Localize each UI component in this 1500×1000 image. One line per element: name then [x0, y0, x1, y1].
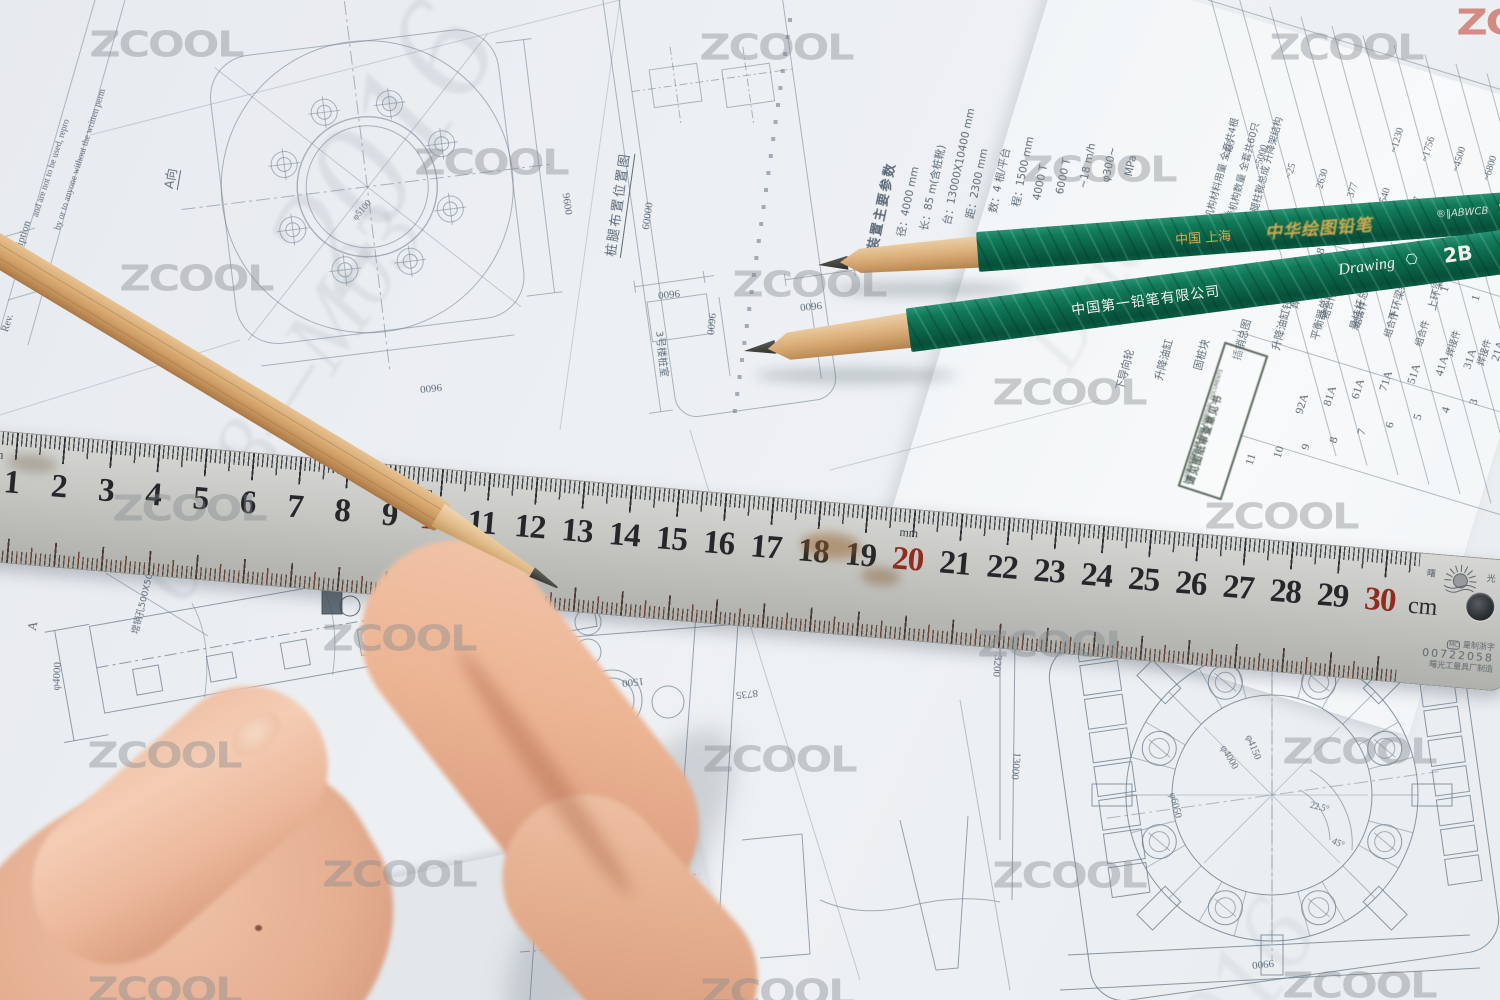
ruler-number-4: 4	[144, 476, 163, 514]
skin-mole	[255, 925, 262, 931]
ruler-number-8: 8	[333, 492, 352, 530]
brand-char-right: 光	[1486, 572, 1496, 585]
pencil-lead-tip	[529, 567, 560, 592]
beam-dim: φ4000	[50, 662, 64, 691]
ruler-number-3: 3	[97, 472, 116, 510]
ruler-number-17: 17	[749, 528, 783, 568]
pencil-hex-icon: ⎔	[1405, 251, 1419, 268]
pile-plan-dim-bottom: 9600	[419, 381, 442, 395]
layout-dim-3: 9600	[704, 313, 718, 336]
ruler-number-22: 22	[985, 548, 1019, 588]
ruler-number-5: 5	[191, 480, 210, 518]
asm-dim-1500c: 1500	[621, 675, 644, 689]
pencil-grade-text: 2B	[1442, 240, 1474, 268]
ruler-number-28: 28	[1268, 573, 1302, 613]
asm-dim-13000: 13000	[1009, 752, 1023, 780]
ruler-cm-label: cm	[1407, 593, 1439, 622]
asm-dim-3200: 3200	[990, 655, 1004, 678]
ruler-number-16: 16	[702, 524, 736, 564]
ruler-number-14: 14	[607, 516, 641, 556]
ruler-number-6: 6	[238, 484, 257, 522]
ruler-number-30: 30	[1363, 581, 1397, 621]
ruler-number-29: 29	[1316, 577, 1350, 617]
ruler-number-25: 25	[1127, 561, 1161, 601]
ruler-number-7: 7	[286, 488, 305, 526]
pencil-wood-cone	[839, 236, 986, 279]
asm-dim-8735: 8735	[735, 687, 758, 701]
pile-plan-view-label: A向	[160, 167, 180, 190]
photo-stage: A向 9600 9600 φ5100 桩腿布置位置图 60000 9600 96…	[0, 0, 1500, 1000]
pencil-shadow	[756, 368, 956, 383]
ruler-mm-label-2: mm	[899, 525, 919, 542]
ruler-number-24: 24	[1080, 557, 1114, 597]
brand-char-left: 曙	[1426, 568, 1436, 580]
pencil-shadow	[832, 282, 1022, 296]
layout-dim-2: 9600	[799, 299, 822, 313]
ruler-number-23: 23	[1032, 552, 1066, 592]
ruler-number-15: 15	[654, 520, 688, 560]
ruler-left-fragment: 5 mm	[0, 446, 4, 463]
ruler-number-2: 2	[50, 468, 69, 506]
ruler-number-13: 13	[560, 512, 594, 552]
ruler-number-21: 21	[938, 544, 972, 584]
ruler-number-12: 12	[513, 508, 547, 548]
ruler-number-27: 27	[1221, 569, 1255, 609]
ruler-number-26: 26	[1174, 565, 1208, 605]
shuguang-sun-logo: 曙 光	[1419, 558, 1500, 599]
layout-dim-1: 9600	[657, 287, 680, 301]
